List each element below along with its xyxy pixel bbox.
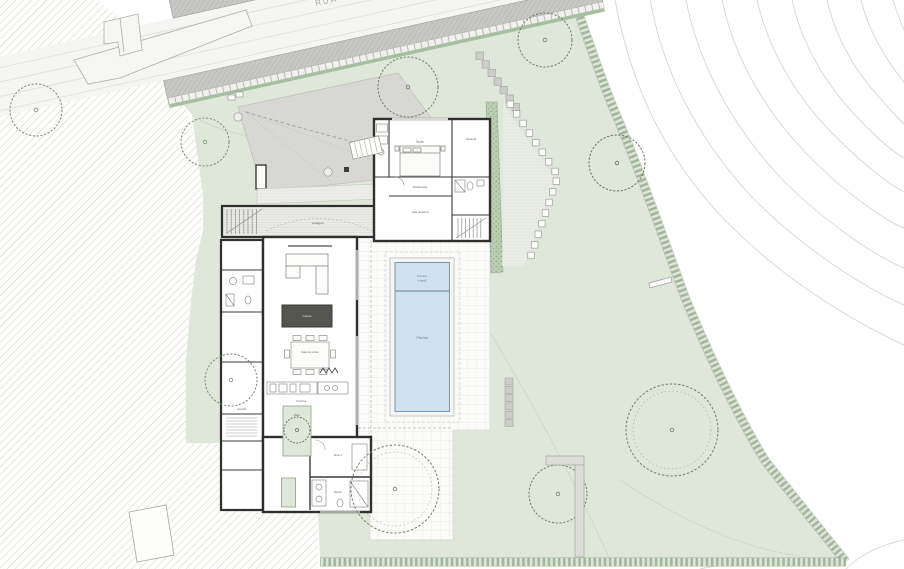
room-label-suite: Suíte xyxy=(416,140,424,144)
room-label-sala-privativa: Sala privativa xyxy=(412,210,429,214)
bed-icon xyxy=(395,146,445,176)
stairs-icon xyxy=(226,418,257,436)
column-marker xyxy=(344,167,349,172)
site-plan-canvas: RUA B xyxy=(0,0,904,569)
room-label-suite2: Suíte 2 xyxy=(334,453,343,457)
manhole-icon xyxy=(324,168,332,176)
room-label-distribuicao: Distribuição xyxy=(413,185,428,189)
pool-kids-label-2: infantil xyxy=(418,279,427,283)
gate-post xyxy=(228,95,235,100)
concrete-pad xyxy=(129,505,174,562)
swimming-pool: Piscina infantil Piscina xyxy=(390,258,454,416)
pool-label: Piscina xyxy=(417,336,428,340)
fireplace-icon: Lareira xyxy=(282,305,332,327)
room-label-lareira: Lareira xyxy=(303,314,312,318)
room-label-banho: Banho xyxy=(334,490,342,494)
room-label-varanda: Varanda xyxy=(466,137,477,141)
skylight xyxy=(256,165,266,189)
room-label-patio: Pátio xyxy=(294,413,301,417)
room-label-escada: Escada xyxy=(238,407,247,411)
media-console-icon xyxy=(288,245,332,247)
room-label-cozinha: Cozinha xyxy=(296,399,307,403)
guest-wing: Suíte 2 Banho xyxy=(263,437,371,512)
gate-post xyxy=(236,92,243,97)
kitchen-counter-icon xyxy=(267,382,348,394)
manhole-icon xyxy=(234,113,242,121)
site-plan-drawing: RUA B xyxy=(0,0,904,569)
suite-wing: Suíte Varanda Distribuição Sala privativ… xyxy=(374,119,490,241)
room-label-jantar: Sala de jantar xyxy=(301,350,318,354)
pool-kids-label: Piscina xyxy=(417,274,427,278)
room-label-garagem: Garagem xyxy=(312,221,325,225)
patio-strip xyxy=(282,478,296,507)
garage-wing: Garagem xyxy=(222,206,380,237)
